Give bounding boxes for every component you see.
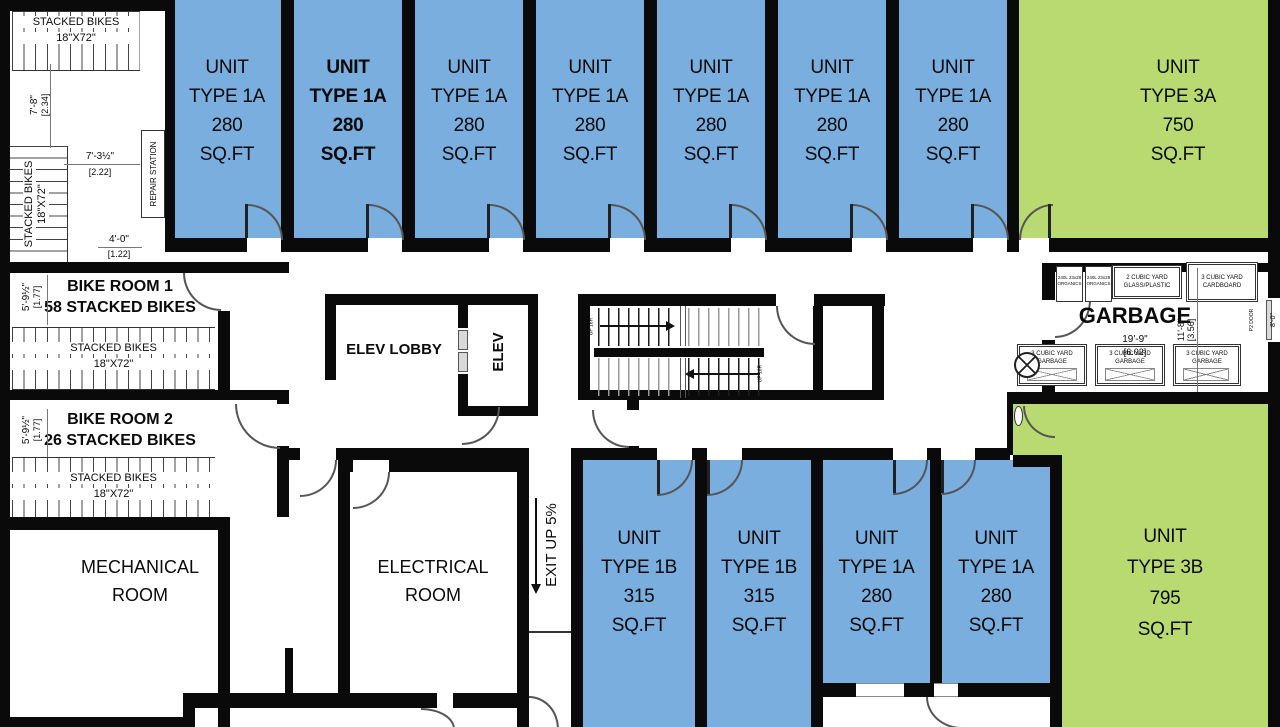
- door-swing-icon: [235, 404, 280, 449]
- dim-text: 7'-8": [29, 95, 40, 115]
- door-leaf: [971, 204, 974, 238]
- door-leaf: [366, 204, 369, 238]
- stair-flight: [688, 358, 762, 396]
- wall: [695, 460, 707, 727]
- door-opening: [731, 238, 765, 252]
- dim-text: [1.77]: [32, 419, 43, 442]
- rack-label-line: 18"X72": [36, 184, 49, 224]
- dimension-line: [47, 275, 48, 325]
- dim-text: [1.77]: [32, 286, 43, 309]
- wall: [644, 0, 657, 252]
- floor-plan: UP 16R UP 16R EXIT UP 5% 240L 23x28 ORGA…: [0, 0, 1280, 727]
- rack-label: STACKED BIKES: [14, 16, 138, 28]
- wall: [811, 460, 823, 727]
- door-swing-icon: [926, 697, 962, 727]
- organics-bin-label: ORGANICS: [1057, 281, 1082, 287]
- ramp-edge-line: [529, 631, 571, 633]
- door-opening: [707, 448, 742, 460]
- window-opening: [934, 683, 958, 697]
- door-leaf: [1048, 204, 1051, 238]
- unit-label: UNITTYPE 1A280SQ.FT: [823, 524, 930, 640]
- wall: [285, 648, 293, 693]
- elev-lobby-label: ELEV LOBBY: [330, 341, 458, 358]
- stair-flight: [688, 308, 762, 346]
- unit-label: UNITTYPE 1A280SQ.FT: [536, 53, 644, 169]
- door-leaf: [245, 204, 248, 238]
- rack-label: STACKED BIKES: [12, 472, 215, 484]
- unit-label: UNITTYPE 1B315SQ.FT: [583, 524, 695, 640]
- door-leaf: [608, 204, 611, 238]
- door-swing-icon: [462, 407, 500, 445]
- dimension-label: 8'-0": [1268, 302, 1278, 338]
- wall: [872, 294, 884, 400]
- door-opening: [368, 238, 402, 252]
- wall: [578, 294, 885, 306]
- exit-ramp-label: EXIT UP 5%: [541, 470, 561, 620]
- stair-up-label: UP 16R: [757, 362, 764, 386]
- wall: [165, 238, 1280, 252]
- arrow-head-icon: [685, 369, 694, 379]
- door-opening: [893, 448, 927, 460]
- repair-station-label: REPAIR STATION: [147, 132, 159, 216]
- stair-break-line: [680, 358, 681, 398]
- door-opening: [247, 238, 281, 252]
- dimension-label: 5'-9½" [1.77]: [21, 267, 43, 327]
- door-opening: [353, 460, 389, 472]
- unit-label: UNITTYPE 1A280SQ.FT: [415, 53, 523, 169]
- unit-label: UNITTYPE 1A280SQ.FT: [942, 524, 1050, 640]
- door-swing-icon: [353, 472, 390, 509]
- wall: [571, 460, 583, 727]
- electrical-room-label: ELECTRICAL: [333, 557, 533, 578]
- wall: [886, 0, 899, 252]
- door-leaf: [729, 204, 732, 238]
- organics-bin: 240L 23x28 ORGANICS: [1085, 266, 1112, 302]
- door-swing-icon: [529, 696, 559, 727]
- door-swing-icon: [776, 306, 815, 345]
- rack-label: 18"X72": [12, 488, 215, 500]
- door-swing-icon: [421, 708, 455, 727]
- door-opening: [973, 238, 1007, 252]
- wall: [765, 0, 778, 252]
- door-leaf: [657, 460, 660, 494]
- dimension-label: 11'-8" [3.56]: [1175, 285, 1197, 375]
- stair-break-line: [685, 306, 686, 346]
- wall: [281, 0, 294, 252]
- door-leaf: [707, 460, 710, 494]
- dimension-label: 5'-9½" [1.77]: [21, 400, 43, 460]
- unit-label: UNITTYPE 1A280SQ.FT: [173, 53, 281, 169]
- dim-text: [3.56]: [1186, 319, 1196, 342]
- rack-label-line: STACKED BIKES: [23, 161, 36, 248]
- door-leaf: [1014, 406, 1023, 426]
- elevator-door: [458, 330, 468, 350]
- wall: [325, 294, 336, 380]
- door-leaf: [487, 204, 490, 238]
- bin-label: GLASS/PLASTIC: [1113, 282, 1181, 290]
- dimension-line: [64, 164, 140, 165]
- unit-label: UNITTYPE 1A280SQ.FT: [294, 53, 402, 169]
- door-opening: [941, 448, 975, 460]
- wall: [523, 0, 536, 252]
- unit-label: UNITTYPE 1A280SQ.FT: [778, 53, 886, 169]
- organics-bin-label: 240L 23x28: [1057, 275, 1082, 281]
- unit-label: UNITTYPE 1A280SQ.FT: [657, 53, 765, 169]
- bin-label: GARBAGE: [1096, 358, 1164, 366]
- door-leaf: [893, 460, 896, 493]
- rack-label: 18"X72": [14, 32, 138, 44]
- door-opening: [300, 448, 336, 460]
- door-opening: [776, 294, 814, 306]
- wall: [183, 693, 195, 727]
- stair-break-line: [680, 306, 681, 346]
- door-opening: [610, 238, 644, 252]
- door-leaf: [850, 204, 853, 238]
- mechanical-room-label: ROOM: [30, 585, 250, 606]
- floor-drain-icon: [1014, 352, 1040, 378]
- wall: [1013, 455, 1062, 467]
- unit-label: UNITTYPE 3A750SQ.FT: [1058, 53, 1280, 169]
- wall: [0, 262, 289, 273]
- stair-flight: [598, 358, 678, 396]
- dim-text: 5'-9½": [21, 416, 32, 444]
- rack-label: 18"X72": [12, 358, 215, 370]
- dim-text: 5'-9½": [21, 283, 32, 311]
- wall: [325, 294, 538, 305]
- electrical-room-label: ROOM: [333, 585, 533, 606]
- dimension-label: [1.22]: [92, 249, 146, 259]
- arrow-head-icon: [666, 321, 675, 331]
- stair-direction-arrow: [600, 325, 668, 327]
- bin-label: 2 CUBIC YARD: [1113, 274, 1181, 282]
- dimension-line: [98, 247, 142, 248]
- stair-direction-arrow: [694, 373, 760, 375]
- door-leaf: [941, 460, 944, 493]
- elev-label: ELEV: [489, 322, 507, 382]
- glass-plastic-bin: 2 CUBIC YARD GLASS/PLASTIC: [1112, 265, 1182, 299]
- rack-label: STACKED BIKES 18"X72": [23, 148, 49, 260]
- dimension-line: [1197, 268, 1198, 392]
- door-opening: [489, 238, 523, 252]
- dimension-label: 7'-3½": [66, 151, 134, 162]
- door-opening: [1019, 238, 1049, 252]
- organics-bin-label: ORGANICS: [1086, 281, 1111, 287]
- elevator-door: [458, 352, 468, 372]
- wall: [578, 294, 590, 400]
- window-opening: [856, 683, 904, 697]
- wall: [0, 717, 190, 727]
- unit-label: UNITTYPE 1B315SQ.FT: [707, 524, 811, 640]
- door-opening: [657, 448, 692, 460]
- rack-label: STACKED BIKES: [12, 342, 215, 354]
- organics-bin-label: 240L 23x28: [1086, 275, 1111, 281]
- p2-door-label: P2 DOOR: [1247, 296, 1257, 344]
- bin-hatch: [1105, 368, 1155, 381]
- wall: [1007, 392, 1280, 404]
- organics-bin: 240L 23x28 ORGANICS: [1056, 266, 1083, 302]
- mechanical-room-label: MECHANICAL: [30, 557, 250, 578]
- unit-label: UNITTYPE 1A280SQ.FT: [899, 53, 1007, 169]
- wall: [1007, 0, 1019, 252]
- dim-text: [2.34]: [40, 94, 51, 117]
- unit-label: UNITTYPE 3B795SQ.FT: [1062, 521, 1268, 645]
- stair-up-label: UP 16R: [588, 315, 595, 339]
- dimension-label: 4'-0": [92, 234, 146, 245]
- wall: [0, 0, 10, 727]
- dimension-label: [2.22]: [66, 167, 134, 177]
- wall: [1007, 404, 1013, 455]
- wall: [528, 294, 538, 416]
- door-opening: [1042, 300, 1055, 340]
- wall: [183, 693, 517, 708]
- stair-landing: [594, 348, 764, 357]
- door-swing-icon: [300, 460, 337, 497]
- wall: [0, 517, 230, 530]
- door-opening: [437, 693, 453, 708]
- exit-arrow: [535, 498, 537, 586]
- door-opening: [852, 238, 886, 252]
- wall: [8, 0, 170, 11]
- ramp-opening: [529, 448, 571, 460]
- dimension-label: 7'-8" [2.34]: [28, 65, 52, 145]
- wall: [0, 390, 289, 400]
- dimension-line: [47, 409, 48, 457]
- dim-text: 11'-8": [1176, 319, 1186, 341]
- wall: [402, 0, 415, 252]
- door-swing-icon: [592, 410, 629, 448]
